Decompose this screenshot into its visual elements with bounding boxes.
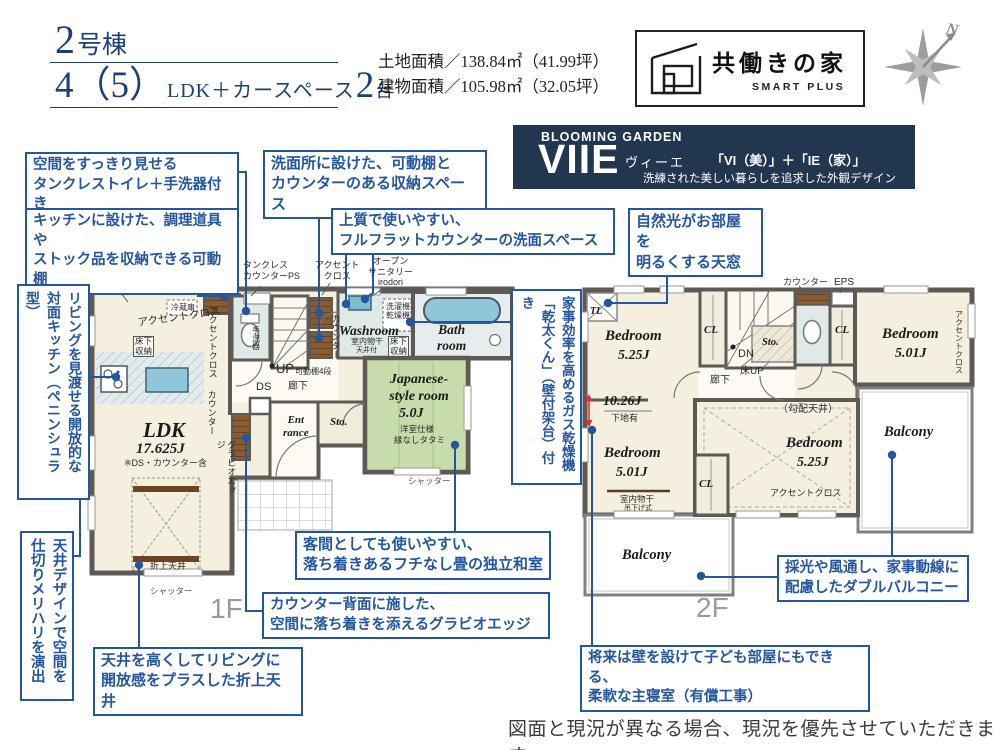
label-hand-basin: 手洗器 — [251, 326, 260, 364]
label-hallway-2f: 廊下 — [710, 375, 730, 387]
callout-double-balcony: 採光や風通し、家事動線に 配慮したダブルバルコニー — [777, 555, 969, 602]
header-rule-2 — [50, 107, 338, 108]
plan-cars: 2 — [356, 64, 375, 108]
label-bathroom: Bath room — [437, 322, 466, 354]
callout-kitchen-shelf: キッチンに設けた、調理道具や ストック品を収納できる可動棚 — [25, 208, 239, 295]
label-wall-backing: 下地有 — [611, 413, 638, 424]
label-bedroom4: Bedroom — [786, 435, 843, 453]
label-ceiling-mount: 天井付 — [356, 347, 377, 355]
banner-formula: 「VI（美）」＋「IE（家）」 — [711, 150, 866, 169]
label-shutter-ldk: シャッター — [150, 586, 193, 596]
series-banner: BLOOMING GARDEN VIIE ヴィーエ 「VI（美）」＋「IE（家）… — [513, 125, 915, 189]
label-japanese-note2: 縁なしタタミ — [394, 435, 445, 445]
footer-disclaimer: 図面と現況が異なる場合、現況を優先させていただきます。 — [508, 714, 1000, 750]
label-ldk: LDK — [143, 418, 185, 443]
label-shelf4-mid: 可動棚4段 — [295, 367, 331, 376]
label-accent-cross-2f-right: アクセントクロス — [954, 310, 963, 384]
callout-gas-dryer: 家事効率を高めるガス乾燥機 「乾太くん」（壁付架台）付き — [511, 289, 582, 485]
label-underfloor-storage-2: 床下 収納 — [388, 336, 409, 357]
label-japanese-size: 5.0J — [399, 406, 424, 423]
label-indoor-drying-2f: 室内物干 — [620, 494, 654, 504]
label-accent-cross-wash: アクセント クロス — [315, 260, 360, 281]
callout-main-bedroom: 将来は壁を設けて子ども部屋にもできる、 柔軟な主寝室（有償工事） — [580, 645, 870, 712]
banner-logo: VIIE — [538, 137, 619, 182]
flyer-page: 2 号棟 4（5） LDK＋カースペース 2 台 土地面積／138.84㎡（41… — [0, 0, 1000, 750]
unit-number: 2 — [55, 16, 75, 63]
label-storage-1f: Sto. — [330, 416, 347, 429]
plan-mid: LDK＋カースペース — [167, 80, 355, 104]
plan-number: 4（5） — [55, 64, 166, 108]
label-accent-cross-2f-bottom: アクセントクロス — [770, 488, 842, 499]
label-washer-dryer: 洗濯機 乾燥機 — [386, 302, 410, 321]
label-ldk-note: ※DS・カウンター含 — [124, 458, 207, 469]
callout-peninsula-kitchen: リビングを見渡せる開放的な 対面キッチン（ペニンシュラ型） — [17, 284, 90, 500]
label-hallway-1f: 廊下 — [288, 381, 308, 393]
unit-title: 2 号棟 — [55, 16, 127, 63]
unit-suffix: 号棟 — [77, 31, 127, 61]
label-gravio-edge: グラビオエッジ — [215, 440, 236, 502]
label-closet-1: CL — [704, 324, 718, 337]
building-area: 建物面積／105.98㎡（32.05坪） — [378, 77, 609, 96]
banner-kana: ヴィーエ — [625, 152, 685, 171]
label-bedroom1: Bedroom — [605, 328, 662, 346]
label-shutter-japanese: シャッター — [408, 476, 451, 486]
label-eps: EPS — [834, 277, 854, 289]
label-bedroom4-size: 5.25J — [797, 455, 829, 472]
label-counter-vertical: カウンター — [206, 390, 217, 440]
label-closet-2: CL — [835, 324, 849, 337]
callout-flat-counter: 上質で使いやすい、 フルフラットカウンターの洗面スペース — [331, 208, 615, 255]
label-hanging-type: 吊下げ式 — [624, 505, 652, 513]
plan-title: 4（5） LDK＋カースペース 2 台 — [55, 64, 393, 108]
land-area: 土地面積／138.84㎡（41.99坪） — [378, 52, 609, 71]
label-up: UP — [276, 361, 294, 376]
label-ds: DS — [256, 381, 271, 394]
label-bedroom3: Bedroom — [882, 326, 939, 344]
label-floor-1f: 1F — [210, 592, 243, 625]
label-counter-2f: カウンター — [783, 277, 828, 288]
label-accent-cross-vertical: アクセントクロス — [207, 306, 218, 392]
label-indoor-drying: 室内物干 — [351, 337, 383, 346]
label-top-light: TL — [590, 306, 602, 318]
brand-sub: SMART PLUS — [752, 81, 845, 93]
label-underfloor-storage: 床下 収納 — [133, 336, 154, 357]
callout-oriage-ceiling: 天井を高くしてリビングに 開放感をプラスした折上天井 — [93, 647, 303, 716]
banner-tagline: 洗練された美しい暮らしを追求した外観デザイン — [643, 170, 896, 186]
brand-name: 共働きの家 — [712, 50, 847, 77]
label-ldk-size: 17.625J — [136, 441, 185, 459]
callout-tatami-room: 客間としても使いやすい、 落ち着きあるフチなし畳の独立和室 — [295, 531, 551, 580]
header-rule-1 — [50, 62, 338, 63]
label-dn: DN — [738, 348, 754, 361]
label-combined-size: 10.26J — [603, 394, 642, 411]
callout-skylight: 自然光がお部屋を 明るくする天窓 — [628, 208, 763, 277]
label-bedroom2-size: 5.01J — [616, 465, 648, 482]
callout-gravio-edge: カウンター背面に施した、 空間に落ち着きを添えるグラビオエッジ — [262, 592, 550, 639]
label-floor-up: 床UP — [740, 366, 764, 378]
label-closet-3: CL — [699, 478, 713, 491]
label-tankless-counter-ps: タンクレス カウンターPS — [243, 260, 300, 281]
label-bedroom3-size: 5.01J — [895, 346, 927, 363]
label-entrance: Ent rance — [283, 414, 309, 440]
label-open-sanitary: オープン サニタリー irodori — [368, 256, 413, 288]
callout-ceiling-design: 天井デザインで空間を 仕切りメリハリを演出 — [20, 531, 74, 701]
label-storage-2f: Sto. — [762, 337, 779, 349]
label-floor-2f: 2F — [696, 591, 729, 624]
label-japanese-note1: 洋室仕様 — [400, 424, 434, 434]
label-bedroom2: Bedroom — [604, 445, 661, 463]
label-japanese-room: Japanese- style room — [377, 372, 461, 405]
label-balcony-right: Balcony — [884, 424, 933, 441]
label-oriage-ceiling: 折上天井 — [150, 561, 186, 572]
label-bedroom1-size: 5.25J — [618, 348, 650, 365]
label-balcony-bottom: Balcony — [622, 547, 671, 564]
label-sloped-ceiling: （勾配天井） — [778, 404, 838, 416]
